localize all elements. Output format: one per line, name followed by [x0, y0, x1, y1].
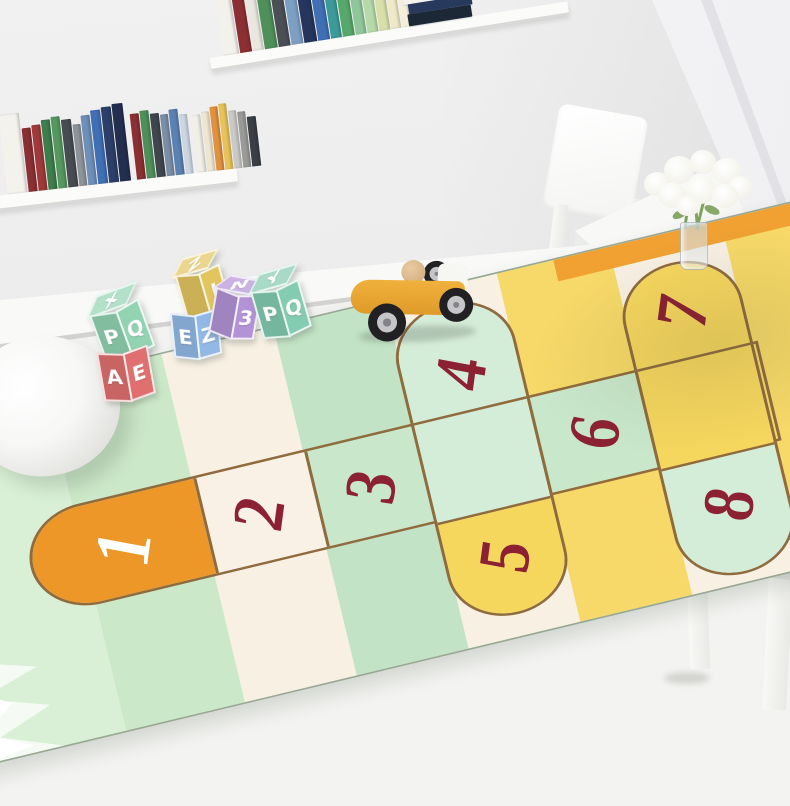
- flower: [676, 196, 700, 216]
- wheel-hub: [376, 312, 398, 334]
- toy-car: [342, 248, 487, 355]
- rug-number-3: 3: [333, 470, 410, 504]
- glass-vase: [680, 222, 708, 270]
- flower: [712, 184, 738, 208]
- car-wheel: [438, 287, 474, 323]
- playroom-scene: 1 2 3 4 5 6 7 8 X P Q A E Z I E Z N 3: [0, 0, 790, 806]
- rug-number-4: 4: [423, 357, 500, 391]
- rug-number-2: 2: [221, 497, 298, 531]
- rug-number-8: 8: [691, 488, 768, 522]
- flower-bouquet: [630, 148, 770, 278]
- wheel-hub: [446, 295, 466, 315]
- toy-block-red: A E: [96, 342, 157, 404]
- rug-number-1: 1: [82, 530, 165, 566]
- rug-number-5: 5: [467, 540, 544, 574]
- chair-leg: [762, 559, 790, 710]
- shadow: [664, 672, 710, 684]
